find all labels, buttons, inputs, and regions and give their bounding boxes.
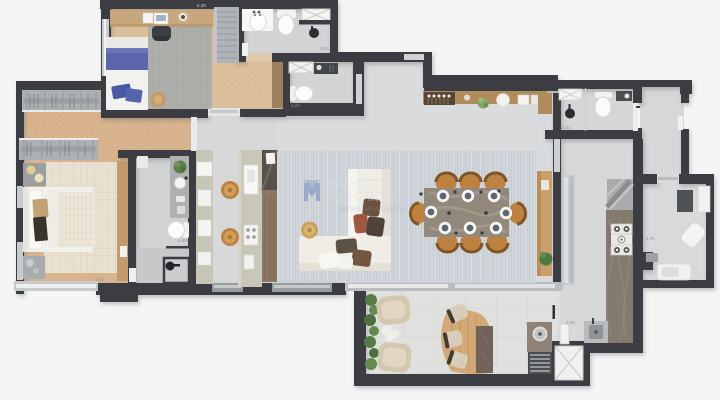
svg-text:1.26: 1.26 [291,103,300,108]
svg-text:4.88: 4.88 [178,238,187,243]
svg-text:3.06: 3.06 [95,277,104,282]
svg-text:NA PLANTA: NA PLANTA [328,192,393,204]
svg-text:CAMPINAS: CAMPINAS [328,180,390,192]
svg-text:5.30: 5.30 [197,3,206,8]
svg-text:2.54: 2.54 [320,46,329,51]
svg-text:2.08: 2.08 [566,320,575,325]
svg-text:4.76: 4.76 [646,236,655,241]
svg-text:2.01: 2.01 [562,125,571,130]
svg-text:6.56: 6.56 [526,321,535,326]
svg-text:IMOBILIARIA DIGITAL: IMOBILIARIA DIGITAL [340,206,406,213]
